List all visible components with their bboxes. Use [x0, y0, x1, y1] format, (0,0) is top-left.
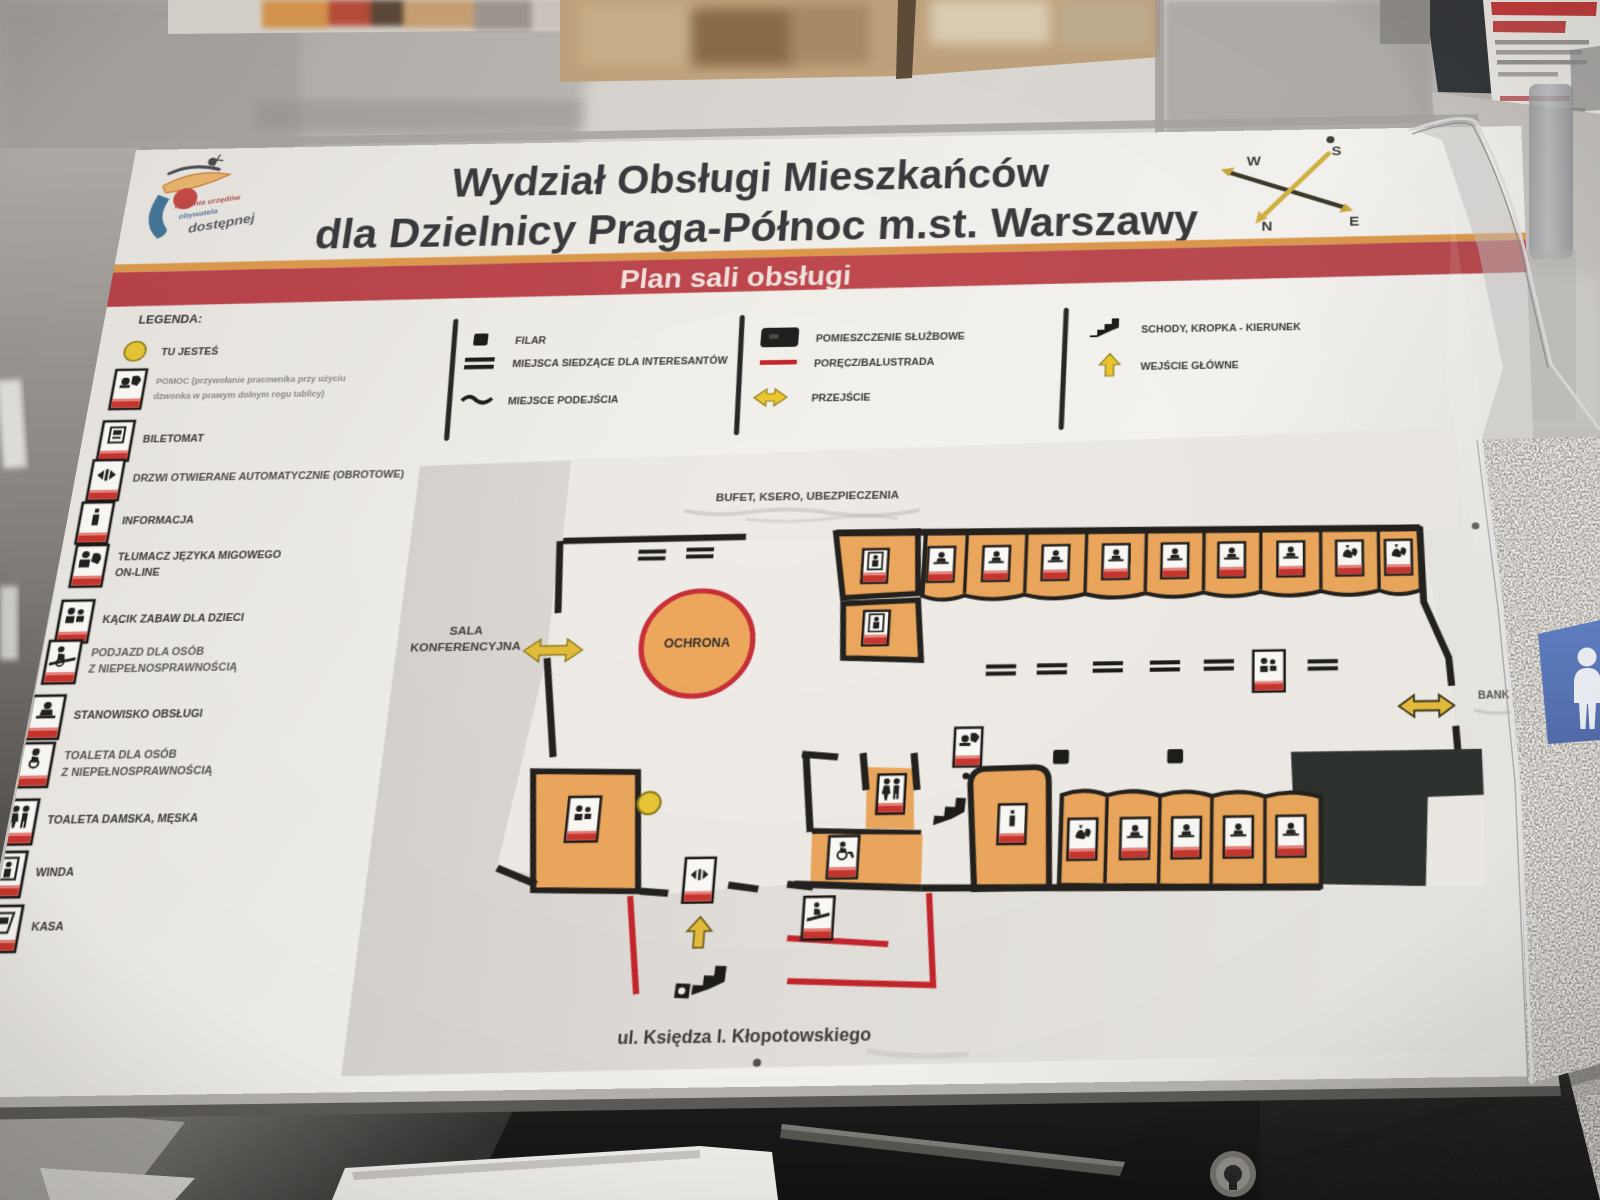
- svg-text:Z NIEPEŁNOSPRAWNOŚCIĄ: Z NIEPEŁNOSPRAWNOŚCIĄ: [60, 764, 214, 780]
- svg-text:N: N: [1261, 218, 1272, 234]
- svg-text:PORĘCZ/BALUSTRADA: PORĘCZ/BALUSTRADA: [814, 357, 935, 370]
- svg-text:ON-LINE: ON-LINE: [114, 567, 161, 579]
- svg-text:PODJAZD DLA OSÓB: PODJAZD DLA OSÓB: [90, 645, 205, 660]
- svg-text:BILETOMAT: BILETOMAT: [142, 433, 205, 445]
- svg-text:PRZEJŚCIE: PRZEJŚCIE: [811, 391, 871, 404]
- svg-text:TOALETA DLA OSÓB: TOALETA DLA OSÓB: [63, 748, 178, 763]
- svg-text:LEGENDA:: LEGENDA:: [137, 314, 202, 327]
- svg-text:MIEJSCE PODEJŚCIA: MIEJSCE PODEJŚCIA: [507, 394, 619, 408]
- svg-text:TU JESTEŚ: TU JESTEŚ: [160, 345, 219, 358]
- svg-text:Z NIEPEŁNOSPRAWNOŚCIĄ: Z NIEPEŁNOSPRAWNOŚCIĄ: [87, 661, 238, 676]
- svg-text:BANK: BANK: [1478, 689, 1510, 701]
- svg-text:Plan sali obsługi: Plan sali obsługi: [618, 261, 852, 294]
- svg-text:OCHRONA: OCHRONA: [663, 637, 730, 651]
- svg-text:W: W: [1247, 153, 1262, 168]
- svg-text:INFORMACJA: INFORMACJA: [121, 515, 195, 528]
- svg-text:KONFERENCYJNA: KONFERENCYJNA: [409, 640, 521, 655]
- svg-text:E: E: [1349, 213, 1359, 229]
- svg-text:S: S: [1331, 143, 1341, 158]
- svg-text:WINDA: WINDA: [34, 866, 75, 879]
- svg-text:KĄCIK ZABAW DLA DZIECI: KĄCIK ZABAW DLA DZIECI: [101, 612, 244, 626]
- svg-text:TOALETA DAMSKA, MĘSKA: TOALETA DAMSKA, MĘSKA: [46, 812, 199, 827]
- svg-text:FILAR: FILAR: [514, 336, 546, 347]
- svg-text:STANOWISKO OBSŁUGI: STANOWISKO OBSŁUGI: [73, 708, 204, 722]
- svg-text:ul. Księdza I. Kłopotowskiego: ul. Księdza I. Kłopotowskiego: [616, 1025, 871, 1049]
- svg-text:SALA: SALA: [449, 625, 484, 639]
- svg-text:KASA: KASA: [30, 921, 65, 935]
- svg-text:WEJŚCIE GŁÓWNE: WEJŚCIE GŁÓWNE: [1140, 359, 1239, 373]
